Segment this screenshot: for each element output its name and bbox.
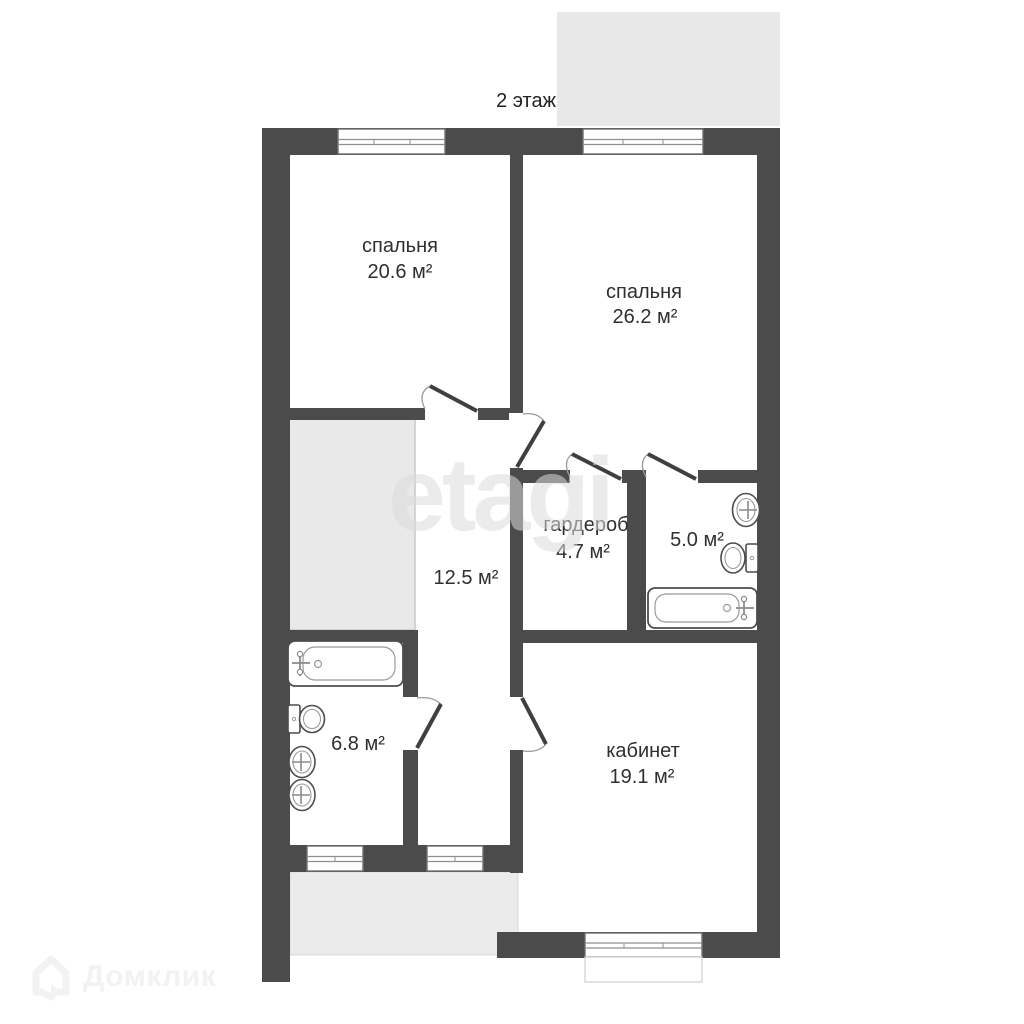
- wall-wardrobe-bath-partition: [627, 470, 646, 643]
- room-label-bathroom-large-area: 6.8 м²: [331, 733, 385, 755]
- room-label-wardrobe-name: гардероб: [543, 514, 628, 536]
- toilet-icon: [721, 543, 758, 573]
- room-label-office-area: 19.1 м²: [610, 766, 675, 788]
- balcony-area: [290, 872, 518, 955]
- wall-center-vertical: [510, 155, 523, 873]
- room-label-office-name: кабинет: [606, 740, 680, 762]
- upper-annex-area: [557, 12, 780, 126]
- opening-bath-large: [402, 697, 419, 750]
- window-icon: [427, 846, 483, 871]
- window-icon: [338, 129, 445, 154]
- sink-icon: [289, 780, 315, 811]
- wall-right: [757, 128, 780, 958]
- sink-icon: [733, 494, 760, 527]
- sink-icon: [289, 747, 315, 778]
- floorplan-drawing: [0, 0, 1024, 1024]
- window-sill: [585, 957, 702, 982]
- wall-suite-bottom: [510, 630, 757, 643]
- domclick-logo: Домклик: [28, 952, 216, 1002]
- bathtub-icon: [288, 641, 403, 686]
- window-icon: [583, 129, 703, 154]
- floor-label: 2 этаж: [446, 90, 556, 113]
- room-label-bedroom1-area: 20.6 м²: [368, 261, 433, 283]
- bathtub-icon: [648, 588, 757, 628]
- room-label-bathroom-small-area: 5.0 м²: [670, 529, 724, 551]
- room-label-bedroom2-area: 26.2 м²: [613, 306, 678, 328]
- wall-left: [262, 128, 290, 982]
- room-label-hallway-area: 12.5 м²: [434, 567, 499, 589]
- brand-house-icon: [28, 952, 74, 1002]
- door-swing-icon: [522, 698, 546, 751]
- stair-void-area: [289, 417, 415, 630]
- opening-office: [509, 697, 524, 750]
- room-label-bedroom2-name: спальня: [606, 281, 682, 303]
- room-label-bedroom1-name: спальня: [362, 235, 438, 257]
- window-icon: [585, 933, 702, 982]
- room-label-wardrobe-area: 4.7 м²: [556, 541, 610, 563]
- door-swing-icon: [417, 698, 441, 748]
- window-icon: [307, 846, 363, 871]
- toilet-icon: [288, 705, 325, 733]
- brand-name-text: Домклик: [83, 960, 216, 994]
- floorplan-canvas: 2 этаж спальня 20.6 м² спальня 26.2 м² 1…: [0, 0, 1024, 1024]
